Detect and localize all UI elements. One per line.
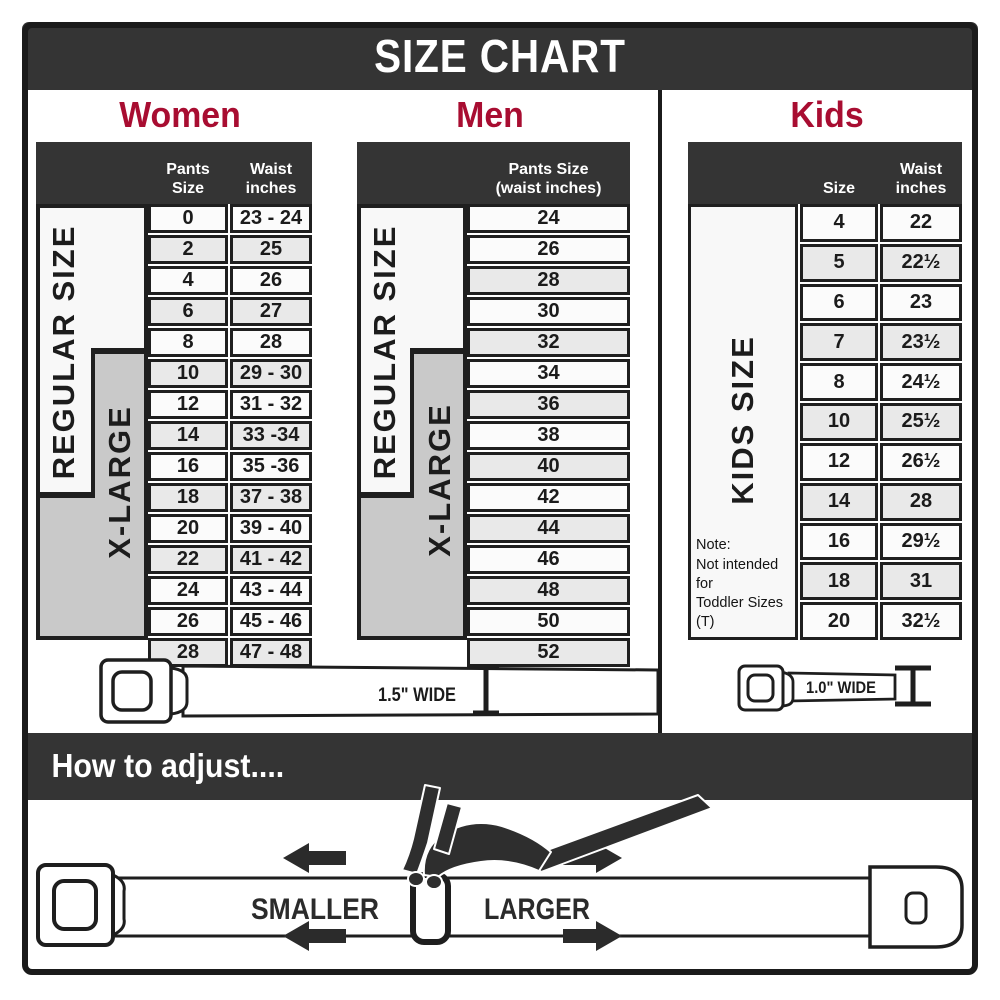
table-cell: 8 xyxy=(148,328,228,357)
table-cell: 43 - 44 xyxy=(230,576,312,605)
table-cell: 10 xyxy=(800,403,878,441)
table-row: 1428 xyxy=(800,483,962,521)
table-row: 627 xyxy=(148,297,312,326)
table-row: 1837 - 38 xyxy=(148,483,312,512)
table-cell: 26 xyxy=(148,607,228,636)
pulled-strap xyxy=(528,795,712,872)
table-row: 2039 - 40 xyxy=(148,514,312,543)
table-cell: 2 xyxy=(148,235,228,264)
women-regular-size-label: REGULAR SIZE xyxy=(46,225,82,480)
table-cell: 22 xyxy=(880,204,962,242)
table-cell: 32 xyxy=(467,328,630,357)
table-row: 1433 -34 xyxy=(148,421,312,450)
table-cell: 23 xyxy=(880,284,962,322)
table-cell: 36 xyxy=(467,390,630,419)
table-row: 623 xyxy=(800,284,962,322)
seatbelt-buckle-icon xyxy=(38,865,113,945)
kids-rows: 422522½623723½824½1025½1226½14281629½183… xyxy=(800,204,962,640)
table-row: 26 xyxy=(467,235,630,264)
table-row: 828 xyxy=(148,328,312,357)
table-cell: 33 -34 xyxy=(230,421,312,450)
table-cell: 22½ xyxy=(880,244,962,282)
table-cell: 6 xyxy=(148,297,228,326)
men-regular-size-label: REGULAR SIZE xyxy=(367,225,403,480)
table-cell: 7 xyxy=(800,323,878,361)
table-row: 50 xyxy=(467,607,630,636)
table-row: 1629½ xyxy=(800,523,962,561)
table-cell: 27 xyxy=(230,297,312,326)
men-table-header: Pants Size (waist inches) xyxy=(357,142,630,204)
table-cell: 0 xyxy=(148,204,228,233)
chart-frame: SIZE CHART Women Men Kids Pants Size Wai… xyxy=(22,22,978,975)
table-row: 2645 - 46 xyxy=(148,607,312,636)
table-cell: 26½ xyxy=(880,443,962,481)
table-cell: 20 xyxy=(148,514,228,543)
kids-belt-illustration: 1.0" WIDE xyxy=(735,656,935,716)
table-row: 30 xyxy=(467,297,630,326)
table-cell: 39 - 40 xyxy=(230,514,312,543)
table-row: 522½ xyxy=(800,244,962,282)
table-row: 46 xyxy=(467,545,630,574)
women-table-header: Pants Size Waist inches xyxy=(36,142,312,204)
belt-tail-slot xyxy=(906,893,926,923)
table-row: 48 xyxy=(467,576,630,605)
table-cell: 38 xyxy=(467,421,630,450)
table-cell: 30 xyxy=(467,297,630,326)
table-cell: 6 xyxy=(800,284,878,322)
table-cell: 28 xyxy=(880,483,962,521)
table-row: 2032½ xyxy=(800,602,962,640)
table-cell: 26 xyxy=(467,235,630,264)
kids-table-header: Size Waist inches xyxy=(688,142,962,204)
table-cell: 18 xyxy=(800,562,878,600)
table-cell: 40 xyxy=(467,452,630,481)
hand-icon xyxy=(402,785,712,889)
table-cell: 26 xyxy=(230,266,312,295)
table-row: 34 xyxy=(467,359,630,388)
kids-size-label: KIDS SIZE xyxy=(725,335,761,505)
table-cell: 24 xyxy=(148,576,228,605)
table-row: 1025½ xyxy=(800,403,962,441)
women-size-table: Pants Size Waist inches REGULAR SIZE X-L… xyxy=(36,142,312,640)
table-cell: 31 - 32 xyxy=(230,390,312,419)
men-xlarge-label: X-LARGE xyxy=(422,403,458,557)
table-cell: 35 -36 xyxy=(230,452,312,481)
kids-belt-width-label: 1.0" WIDE xyxy=(806,678,876,697)
table-cell: 44 xyxy=(467,514,630,543)
table-cell: 41 - 42 xyxy=(230,545,312,574)
table-row: 1231 - 32 xyxy=(148,390,312,419)
table-cell: 4 xyxy=(800,204,878,242)
men-rows: 242628303234363840424446485052 xyxy=(467,204,630,640)
table-row: 28 xyxy=(467,266,630,295)
table-cell: 4 xyxy=(148,266,228,295)
table-cell: 24 xyxy=(467,204,630,233)
table-cell: 16 xyxy=(148,452,228,481)
kids-col-header-waist: Waist inches xyxy=(880,161,962,199)
table-row: 1831 xyxy=(800,562,962,600)
table-row: 44 xyxy=(467,514,630,543)
table-cell: 48 xyxy=(467,576,630,605)
table-row: 42 xyxy=(467,483,630,512)
men-section-heading: Men xyxy=(456,94,524,136)
seatbelt-buckle-icon xyxy=(739,666,783,710)
table-row: 023 - 24 xyxy=(148,204,312,233)
kids-section-heading: Kids xyxy=(790,94,863,136)
table-cell: 29 - 30 xyxy=(230,359,312,388)
buckle-latch xyxy=(171,668,187,714)
table-cell: 14 xyxy=(800,483,878,521)
table-row: 1635 -36 xyxy=(148,452,312,481)
women-xlarge-label: X-LARGE xyxy=(102,405,138,559)
table-cell: 37 - 38 xyxy=(230,483,312,512)
table-cell: 25½ xyxy=(880,403,962,441)
larger-label: LARGER xyxy=(484,893,590,926)
women-col-header-pants-size: Pants Size xyxy=(148,161,228,199)
table-row: 2241 - 42 xyxy=(148,545,312,574)
table-cell: 46 xyxy=(467,545,630,574)
table-cell: 24½ xyxy=(880,363,962,401)
table-cell: 28 xyxy=(230,328,312,357)
table-cell: 8 xyxy=(800,363,878,401)
table-row: 225 xyxy=(148,235,312,264)
table-cell: 5 xyxy=(800,244,878,282)
kids-note: Note: Not intended for Toddler Sizes (T) xyxy=(696,536,795,632)
table-cell: 31 xyxy=(880,562,962,600)
table-row: 40 xyxy=(467,452,630,481)
table-row: 36 xyxy=(467,390,630,419)
adult-belt-illustration: 1.5" WIDE xyxy=(95,652,658,724)
table-cell: 23 - 24 xyxy=(230,204,312,233)
table-row: 32 xyxy=(467,328,630,357)
table-cell: 12 xyxy=(148,390,228,419)
kids-size-table: Size Waist inches Note: Not intended for… xyxy=(688,142,962,640)
table-row: 422 xyxy=(800,204,962,242)
women-section-heading: Women xyxy=(119,94,241,136)
table-cell: 50 xyxy=(467,607,630,636)
table-cell: 14 xyxy=(148,421,228,450)
size-chart-banner: SIZE CHART xyxy=(22,22,978,90)
size-chart-page: { "banner": { "title": "SIZE CHART" }, "… xyxy=(0,0,1000,1000)
adjust-illustration: SMALLER LARGER xyxy=(28,755,972,970)
table-cell: 22 xyxy=(148,545,228,574)
arrow-left-top-icon xyxy=(283,843,346,873)
table-cell: 20 xyxy=(800,602,878,640)
table-cell: 42 xyxy=(467,483,630,512)
men-col-header-pants-size: Pants Size (waist inches) xyxy=(467,161,630,199)
table-cell: 34 xyxy=(467,359,630,388)
women-rows: 023 - 242254266278281029 - 301231 - 3214… xyxy=(148,204,312,640)
table-row: 426 xyxy=(148,266,312,295)
table-row: 24 xyxy=(467,204,630,233)
table-cell: 10 xyxy=(148,359,228,388)
table-cell: 32½ xyxy=(880,602,962,640)
women-col-header-waist: Waist inches xyxy=(230,161,312,199)
table-row: 1029 - 30 xyxy=(148,359,312,388)
width-measure-icon xyxy=(895,668,931,704)
table-cell: 16 xyxy=(800,523,878,561)
page-title: SIZE CHART xyxy=(374,29,626,83)
kids-col-header-size: Size xyxy=(800,180,878,199)
table-row: 824½ xyxy=(800,363,962,401)
table-row: 723½ xyxy=(800,323,962,361)
table-row: 38 xyxy=(467,421,630,450)
smaller-label: SMALLER xyxy=(251,893,379,926)
table-cell: 23½ xyxy=(880,323,962,361)
kids-section-divider xyxy=(658,90,662,733)
table-row: 2443 - 44 xyxy=(148,576,312,605)
table-row: 1226½ xyxy=(800,443,962,481)
men-size-table: Pants Size (waist inches) REGULAR SIZE X… xyxy=(357,142,630,640)
table-cell: 29½ xyxy=(880,523,962,561)
table-cell: 25 xyxy=(230,235,312,264)
table-cell: 28 xyxy=(467,266,630,295)
table-cell: 18 xyxy=(148,483,228,512)
adult-belt-width-label: 1.5" WIDE xyxy=(378,685,456,706)
table-cell: 45 - 46 xyxy=(230,607,312,636)
table-cell: 12 xyxy=(800,443,878,481)
